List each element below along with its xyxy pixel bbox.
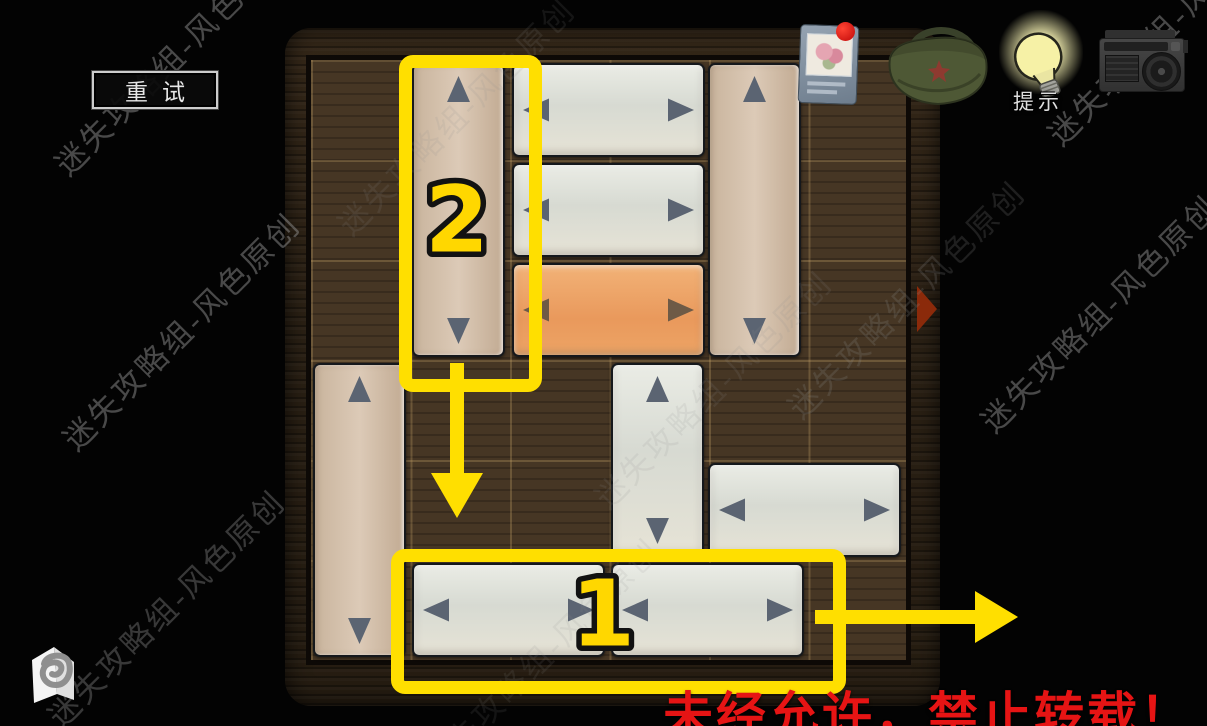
arrow-right-icon — [668, 97, 694, 123]
arrow-down-icon — [742, 318, 768, 344]
arrow-up-icon — [645, 376, 671, 402]
radio-display — [1104, 42, 1168, 51]
step2-label: 2 — [392, 152, 522, 282]
arrow-left-icon — [719, 497, 745, 523]
arrow-down-icon — [347, 618, 373, 644]
radio-item[interactable] — [1099, 30, 1185, 92]
svg-text:1: 1 — [571, 561, 635, 668]
notification-badge — [836, 22, 855, 41]
game-screen: 迷失攻略组-风色原创 迷失攻略组-风色原创 迷失攻略组-风色原创 迷失攻略组-风… — [0, 0, 1207, 726]
retry-button[interactable]: 重试 — [92, 71, 218, 109]
antenna-nub — [1183, 40, 1188, 53]
arrow-up-icon — [742, 76, 768, 102]
block-vertical-col5[interactable] — [708, 63, 801, 357]
arrow-right-icon — [864, 497, 890, 523]
watermark-text: 迷失攻略组-风色原创 — [51, 201, 309, 459]
speaker-icon — [1142, 52, 1181, 91]
photo-caption-line — [807, 89, 837, 94]
step1-label: 1 — [538, 546, 668, 676]
copyright-notice: 未经允许，禁止转载！ — [663, 676, 1193, 726]
cassette-door — [1105, 55, 1139, 82]
radio-body — [1099, 38, 1185, 92]
block-horizontal-row5[interactable] — [708, 463, 901, 557]
radio-knob — [1171, 42, 1180, 51]
folded-map-icon — [24, 642, 82, 706]
photo-caption-line — [807, 81, 845, 86]
watermark-text: 迷失攻略组-风色原创 — [969, 183, 1207, 441]
block-vertical-col4[interactable] — [611, 363, 704, 557]
arrow-right-icon — [668, 197, 694, 223]
satchel-bag-item[interactable] — [878, 16, 1000, 108]
arrow-right-icon — [668, 297, 694, 323]
guide-arrow-right-icon — [815, 586, 1020, 648]
guide-arrow-down-icon — [424, 363, 490, 521]
arrow-down-icon — [645, 518, 671, 544]
svg-text:2: 2 — [425, 167, 489, 274]
map-menu-button[interactable] — [24, 642, 82, 706]
hint-label: 提示 — [1006, 86, 1070, 116]
satchel-bag-icon — [878, 16, 1000, 108]
arrow-up-icon — [347, 376, 373, 402]
